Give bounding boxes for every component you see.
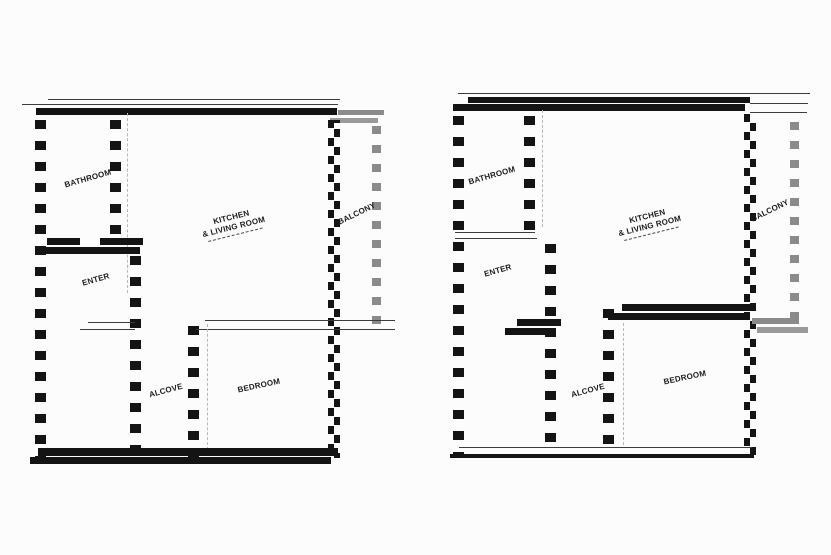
top-guide-line [458, 93, 810, 94]
room-label-enter: ENTER [483, 262, 513, 279]
bathroom-wall [524, 116, 535, 236]
bedroom-top-wall [622, 304, 750, 311]
alcove-bedroom-wall [603, 309, 614, 456]
room-label-alcove: ALCOVE [570, 382, 606, 401]
balcony-outer-wall [790, 122, 799, 330]
room-label-bedroom: BEDROOM [663, 369, 707, 388]
balcony-bottom-wall [757, 327, 808, 333]
room-label-kitchen-living: KITCHEN & LIVING ROOM [615, 204, 683, 242]
guide-dashed-line [623, 323, 624, 445]
bathroom-bottom-line [455, 232, 535, 233]
left-exterior-wall [453, 116, 464, 456]
balcony-top-line [750, 103, 808, 104]
bathroom-bottom-line [455, 238, 537, 239]
enter-door-wall [517, 319, 561, 326]
top-wall [468, 97, 750, 103]
floor-plan-right: BATHROOM KITCHEN & LIVING ROOM BALCONY E… [0, 0, 831, 555]
balcony-bottom-wall [752, 318, 799, 324]
guide-dashed-line [542, 110, 543, 227]
top-wall [453, 104, 745, 111]
balcony-top-line [750, 112, 807, 113]
enter-alcove-wall [545, 244, 556, 456]
bottom-wall-line [459, 447, 752, 448]
bottom-wall [450, 454, 754, 458]
floor-plans-canvas: BATHROOM KITCHEN & LIVING ROOM BALCONY E… [0, 0, 831, 555]
room-label-bathroom: BATHROOM [467, 165, 516, 188]
right-exterior-wall [744, 114, 756, 456]
enter-door-wall [505, 328, 551, 335]
bedroom-top-wall [608, 313, 747, 320]
